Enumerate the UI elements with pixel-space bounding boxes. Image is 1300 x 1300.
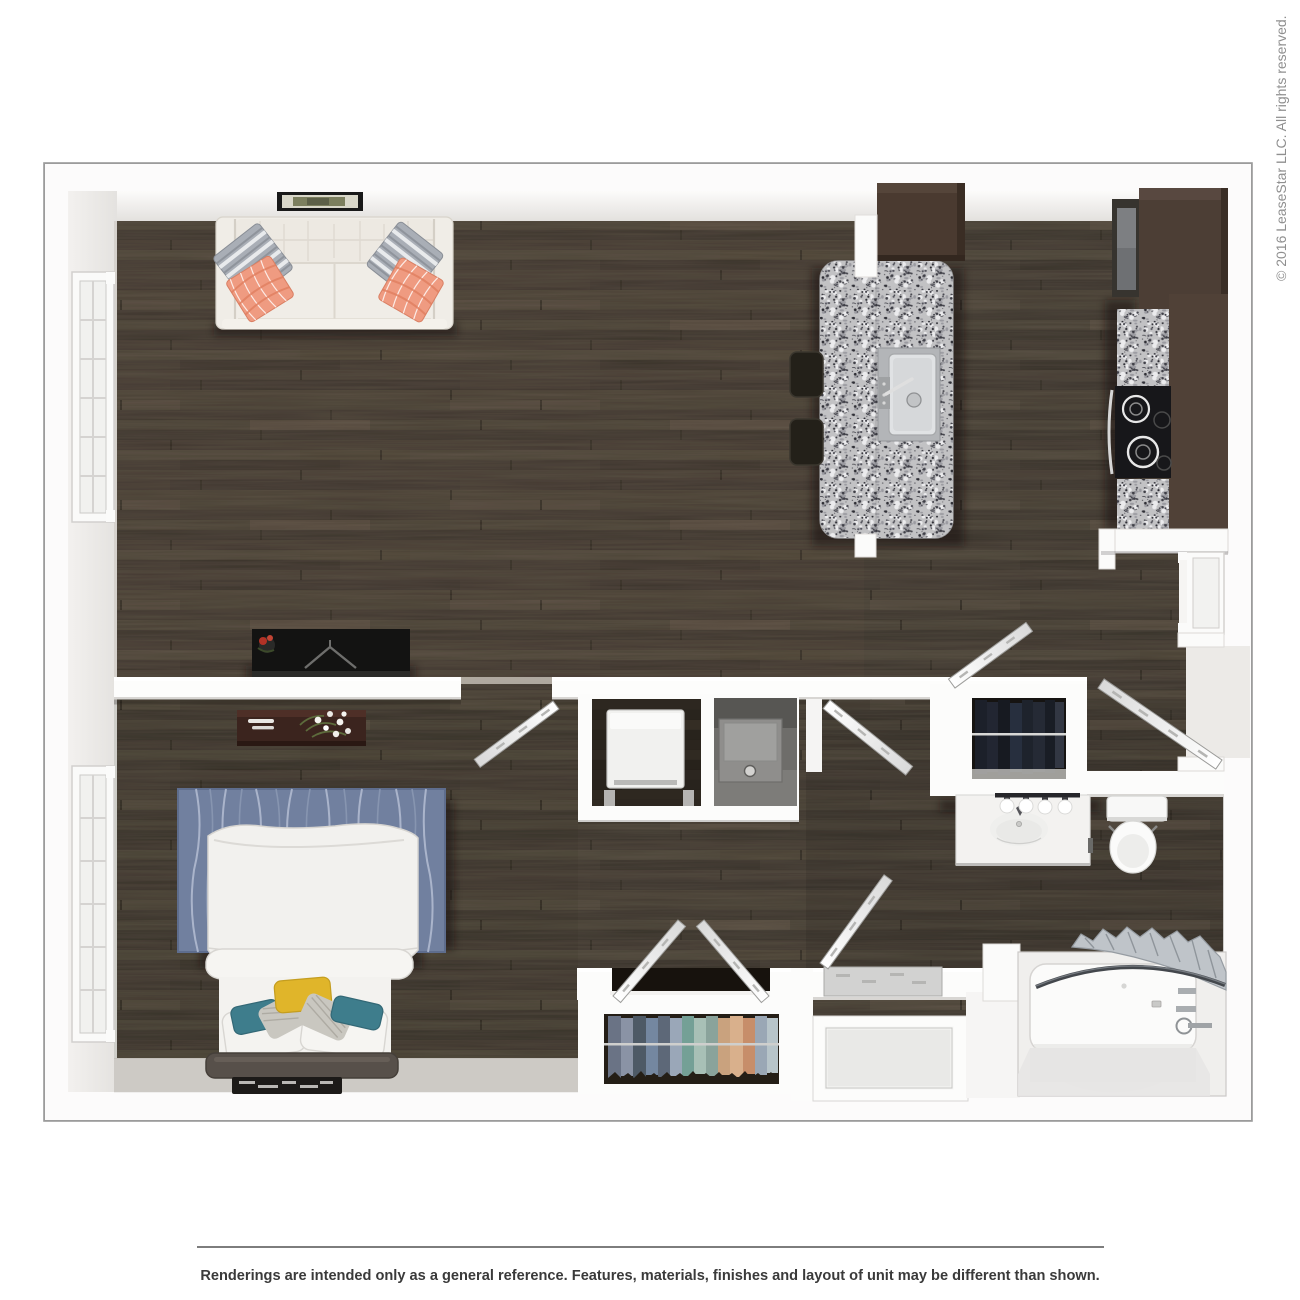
svg-text:Renderings are intended only a: Renderings are intended only as a genera… [200,1268,1099,1284]
svg-text:© 2016 LeaseStar LLC. All righ: © 2016 LeaseStar LLC. All rights reserve… [1273,15,1289,281]
